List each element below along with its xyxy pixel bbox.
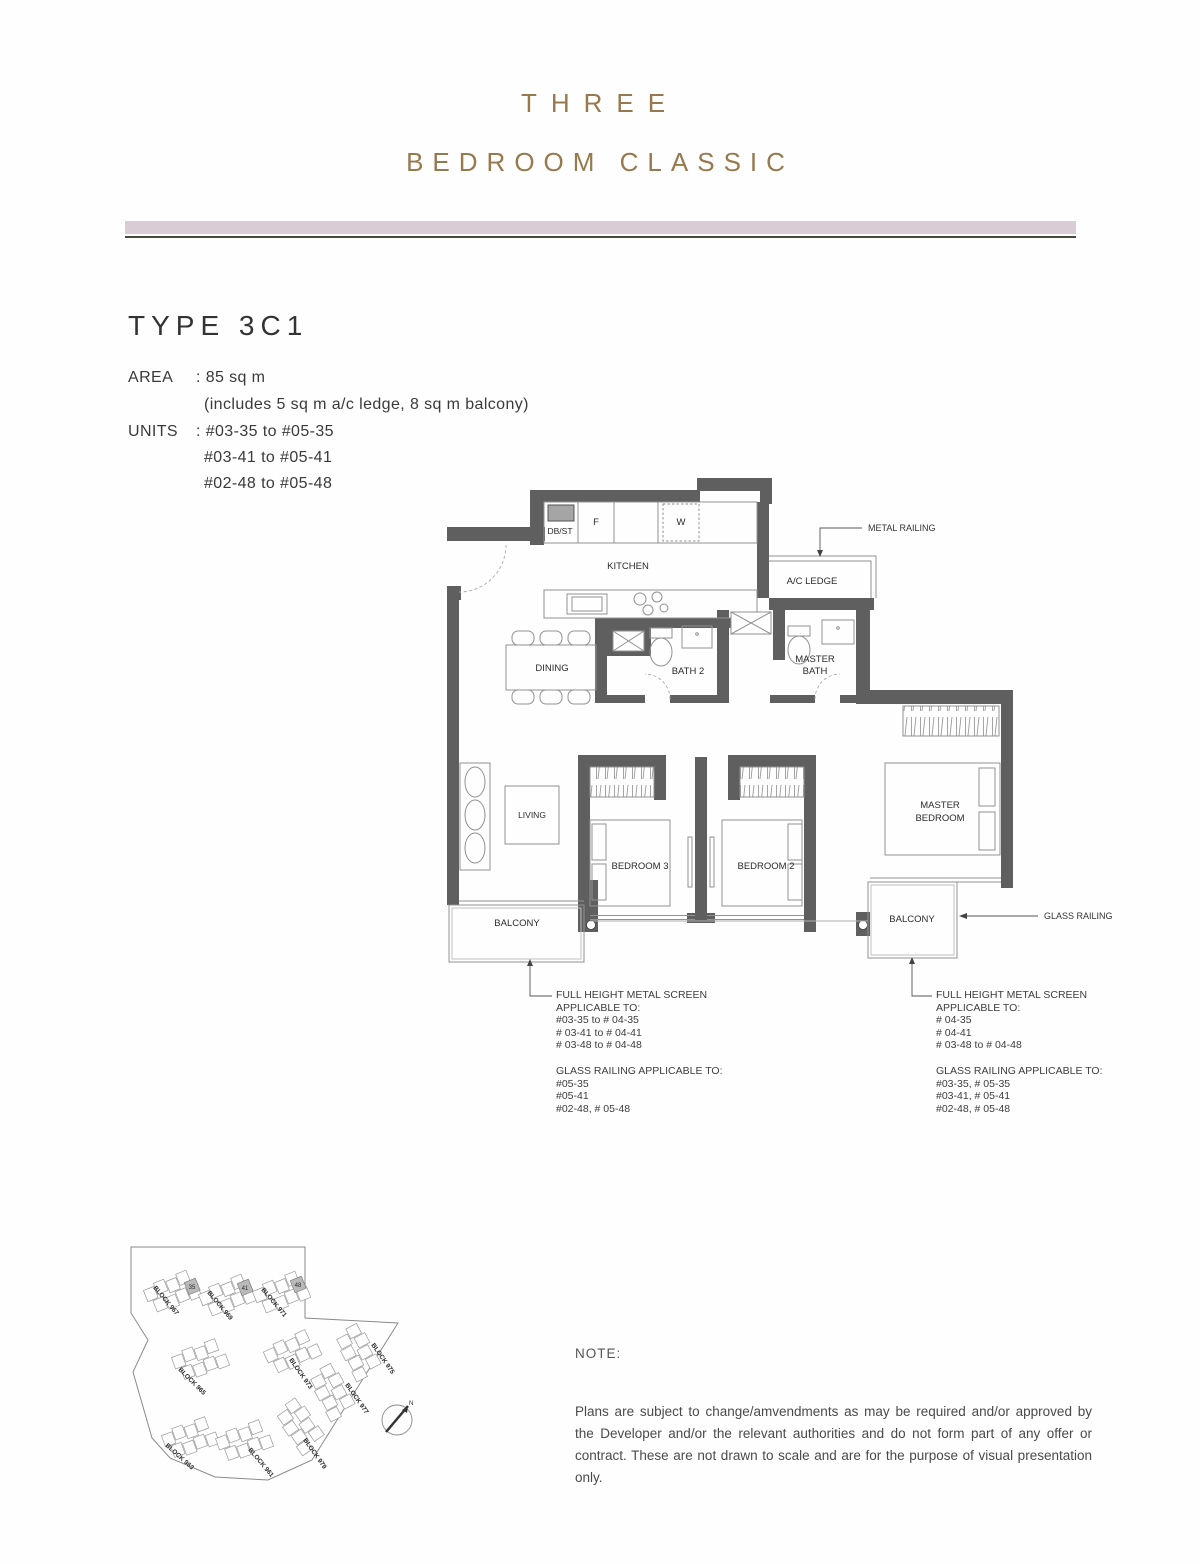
annotation-metal-railing: METAL RAILING: [868, 523, 936, 533]
svg-text:48: 48: [295, 1283, 302, 1289]
room-label-master-bedroom: MASTER: [920, 800, 960, 811]
units-line: #02-48 to #05-48: [204, 475, 332, 493]
svg-text:BLOCK 961: BLOCK 961: [246, 1447, 275, 1479]
units-label: UNITS: [128, 423, 178, 441]
room-label-dining: DINING: [535, 663, 568, 674]
area-label: AREA: [128, 369, 173, 387]
room-label-ac-ledge: A/C LEDGE: [787, 576, 838, 587]
title-line-1: THREE: [0, 88, 1200, 119]
title-line-2: BEDROOM CLASSIC: [0, 147, 1200, 178]
room-label-dbst: DB/ST: [547, 526, 572, 536]
room-label-bedroom3: BEDROOM 3: [611, 861, 668, 872]
column: [587, 921, 596, 930]
annotation-block-right: FULL HEIGHT METAL SCREEN APPLICABLE TO: …: [936, 989, 1136, 1115]
block-clusters: [142, 1268, 383, 1464]
decorative-bar: [125, 221, 1076, 234]
divider-rule: [125, 236, 1076, 238]
room-label-balcony-left: BALCONY: [494, 918, 540, 929]
svg-text:35: 35: [189, 1285, 196, 1291]
room-label-bath2: BATH 2: [672, 666, 705, 677]
unit-type-title: TYPE 3C1: [128, 310, 308, 342]
room-label-washer: W: [677, 517, 686, 528]
area-note: (includes 5 sq m a/c ledge, 8 sq m balco…: [204, 396, 529, 414]
room-label-living: LIVING: [518, 810, 546, 820]
annotation-glass-railing: GLASS RAILING: [1044, 911, 1113, 921]
room-label-master-bath: MASTER: [795, 654, 835, 665]
svg-text:BATH: BATH: [803, 666, 828, 677]
svg-text:N: N: [409, 1401, 413, 1407]
site-plan: 35 41 48 BLOCK 967 BLOCK 969 BLOCK 971 B…: [125, 1228, 465, 1518]
room-label-bedroom2: BEDROOM 2: [737, 861, 794, 872]
page-title: THREE BEDROOM CLASSIC: [0, 88, 1200, 178]
note-label: NOTE:: [575, 1346, 621, 1361]
room-label-kitchen: KITCHEN: [607, 561, 649, 572]
units-line: #03-41 to #05-41: [204, 449, 332, 467]
svg-text:41: 41: [242, 1286, 249, 1292]
svg-text:BEDROOM: BEDROOM: [915, 813, 964, 824]
note-body: Plans are subject to change/amvendments …: [575, 1401, 1092, 1488]
annotation-block-left: FULL HEIGHT METAL SCREEN APPLICABLE TO: …: [556, 989, 756, 1115]
area-value: : 85 sq m: [196, 369, 265, 387]
brochure-page: THREE BEDROOM CLASSIC TYPE 3C1 AREA : 85…: [0, 0, 1200, 1564]
fixtures: [449, 502, 1001, 962]
room-label-fridge: F: [593, 517, 599, 528]
compass-icon: N: [382, 1401, 413, 1435]
room-label-balcony-right: BALCONY: [889, 914, 935, 925]
units-line: : #03-35 to #05-35: [196, 423, 334, 441]
column: [859, 921, 868, 930]
